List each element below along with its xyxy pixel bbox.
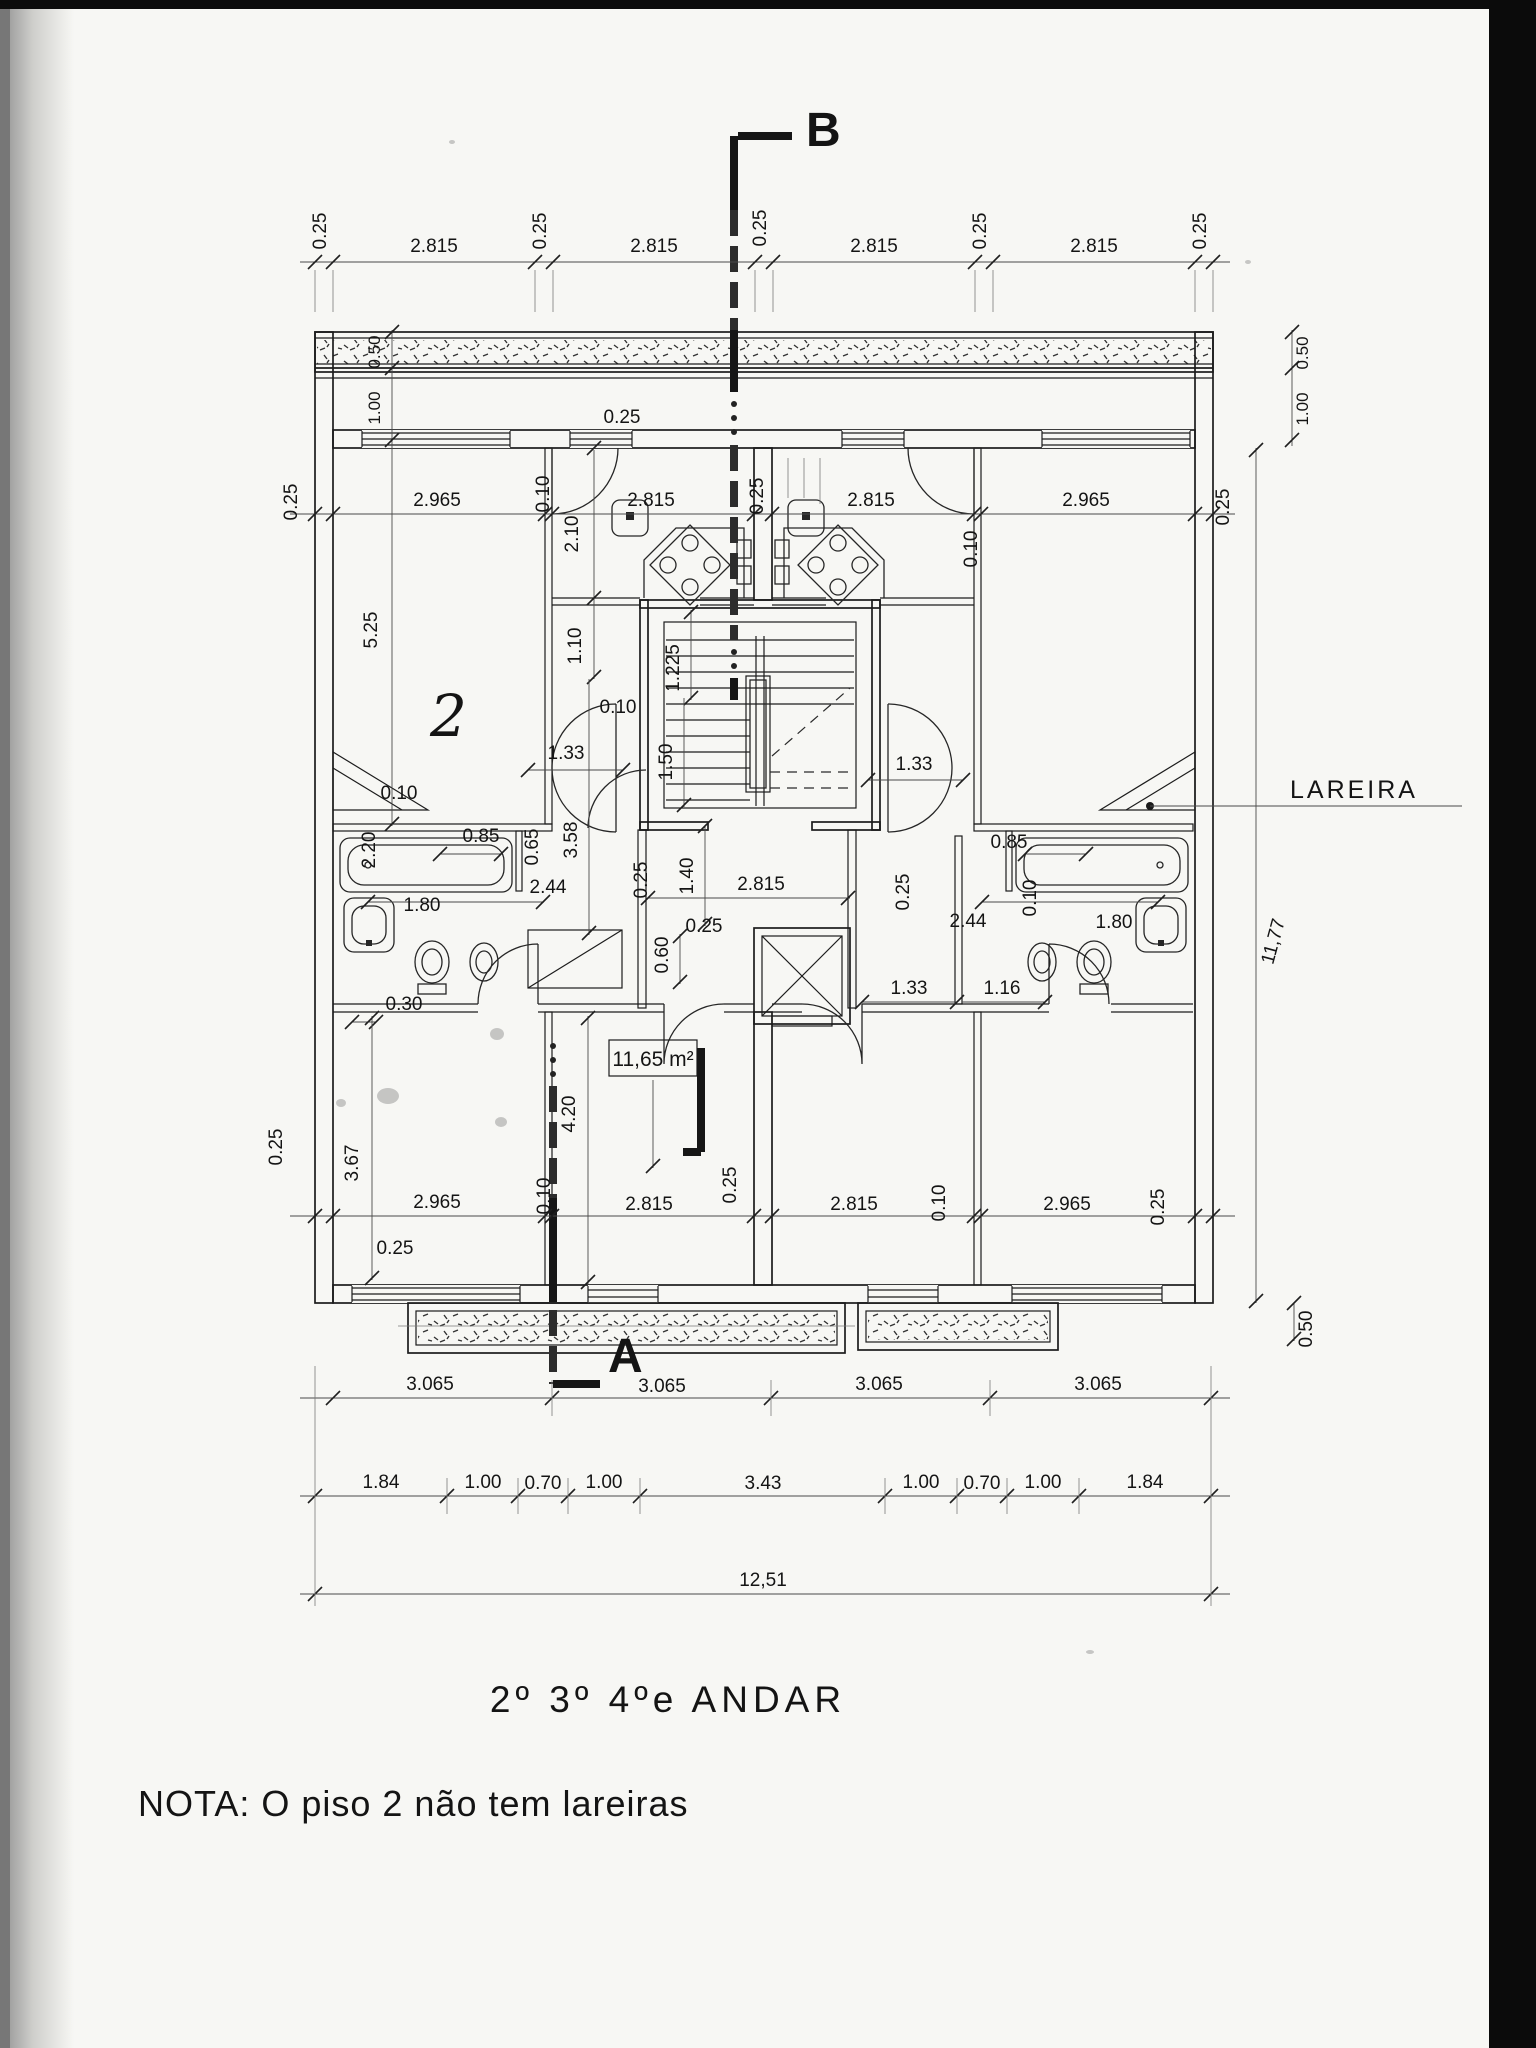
- dim-label: 0.50: [1293, 336, 1312, 369]
- dim-label: 0.10: [961, 531, 982, 568]
- window-bottom-left: [352, 1285, 520, 1303]
- dim-label: 2.965: [1062, 490, 1110, 511]
- dim-label: 2.815: [630, 236, 678, 257]
- dim-label: 0.25: [530, 213, 551, 250]
- dim-label: 2.965: [413, 490, 461, 511]
- dim-label: 1.10: [565, 628, 586, 665]
- plan-note: NOTA: O piso 2 não tem lareiras: [138, 1783, 689, 1824]
- dim-label: 0.70: [964, 1473, 1001, 1494]
- dim-label: 12,51: [739, 1570, 787, 1591]
- dim-label: 0.10: [929, 1185, 950, 1222]
- dim-label: 1.00: [1025, 1472, 1062, 1493]
- dim-label: 0.60: [652, 937, 673, 974]
- dim-label: 1.00: [465, 1472, 502, 1493]
- dim-label: 3.065: [638, 1376, 686, 1397]
- dim-label: 1.80: [404, 895, 441, 916]
- dim-label: 0.25: [1190, 213, 1211, 250]
- scanned-floorplan-page: B A: [0, 0, 1536, 2048]
- plan-title: 2º 3º 4ºe ANDAR: [490, 1679, 846, 1720]
- dim-label: 0.50: [1296, 1311, 1317, 1348]
- dim-label: 1.33: [896, 754, 933, 775]
- dim-label: 5.25: [361, 612, 382, 649]
- dim-label: 1.40: [677, 858, 698, 895]
- dim-label: 0.25: [720, 1167, 741, 1204]
- dim-label: 1.00: [365, 391, 384, 424]
- dim-label: 1.16: [984, 978, 1021, 999]
- dim-label: 2.44: [950, 911, 987, 932]
- window-top-left: [362, 430, 510, 448]
- dim-label: 0.25: [266, 1129, 287, 1166]
- dim-label: 2.815: [737, 874, 785, 895]
- dim-label: 0.10: [1020, 880, 1041, 917]
- dim-label: 0.25: [893, 874, 914, 911]
- dim-label: 0.25: [747, 478, 768, 515]
- dim-label: 3.67: [342, 1145, 363, 1182]
- dim-label: 2.815: [850, 236, 898, 257]
- dim-label: 0.25: [281, 484, 302, 521]
- dim-label: 1.33: [891, 978, 928, 999]
- dim-label: 0.85: [463, 826, 500, 847]
- floorplan-drawing: B A: [0, 0, 1536, 2048]
- dim-label: 1.00: [903, 1472, 940, 1493]
- dim-label: 1.50: [656, 744, 677, 781]
- lareira-label: LAREIRA: [1290, 776, 1418, 804]
- dim-label: 0.30: [386, 994, 423, 1015]
- dim-label: 2.815: [830, 1194, 878, 1215]
- dim-label: 0.25: [604, 407, 641, 428]
- dim-label: 0.10: [534, 1178, 555, 1215]
- window-kitchen-left: [570, 430, 632, 448]
- dim-label: 1.33: [548, 743, 585, 764]
- dim-label: 1.80: [1096, 912, 1133, 933]
- dim-label: 0.10: [600, 697, 637, 718]
- handwritten-mark: 2: [429, 682, 467, 750]
- area-label: 11,65 m²: [612, 1048, 693, 1071]
- dim-label: 1.84: [363, 1472, 400, 1493]
- dim-label: 0.25: [750, 210, 771, 247]
- dim-label: 3.58: [561, 822, 582, 859]
- window-bottom-right: [1012, 1285, 1162, 1303]
- dim-label: 1.225: [663, 644, 684, 692]
- dim-label: 0.25: [1148, 1189, 1169, 1226]
- dim-label: 3.065: [406, 1374, 454, 1395]
- dim-label: 0.85: [991, 832, 1028, 853]
- dim-label: 0.25: [686, 916, 723, 937]
- dim-label: 1.84: [1127, 1472, 1164, 1493]
- dim-label: 2.815: [625, 1194, 673, 1215]
- dim-label: 2.965: [1043, 1194, 1091, 1215]
- dim-label: 0.25: [631, 862, 652, 899]
- dim-label: 3.065: [1074, 1374, 1122, 1395]
- dim-label: 3.43: [745, 1473, 782, 1494]
- dim-label: 0.25: [1213, 489, 1234, 526]
- dim-label: 0.25: [310, 213, 331, 250]
- balcony-door-left: [588, 1285, 658, 1303]
- dim-label: 2.815: [1070, 236, 1118, 257]
- window-kitchen-right: [842, 430, 904, 448]
- dim-label: 0.25: [970, 213, 991, 250]
- dim-label: 2.20: [359, 832, 380, 869]
- balcony-door-right: [868, 1285, 938, 1303]
- dim-label: 1.00: [1293, 392, 1312, 425]
- section-label-b: B: [806, 104, 841, 157]
- dim-label: 2.10: [562, 516, 583, 553]
- dim-label: 2.965: [413, 1192, 461, 1213]
- dim-label: 3.065: [855, 1374, 903, 1395]
- dim-label: 1.00: [586, 1472, 623, 1493]
- dim-label: 0.10: [533, 476, 554, 513]
- dim-label: 2.815: [627, 490, 675, 511]
- dim-label: 4.20: [559, 1096, 580, 1133]
- dim-label: 0.50: [365, 335, 384, 368]
- window-top-right: [1042, 430, 1190, 448]
- dim-label: 0.65: [522, 829, 543, 866]
- dim-label: 0.10: [381, 783, 418, 804]
- dim-label: 2.815: [410, 236, 458, 257]
- dim-label: 2.44: [530, 877, 567, 898]
- dim-label: 0.25: [377, 1238, 414, 1259]
- dim-label: 2.815: [847, 490, 895, 511]
- dim-label: 0.70: [525, 1473, 562, 1494]
